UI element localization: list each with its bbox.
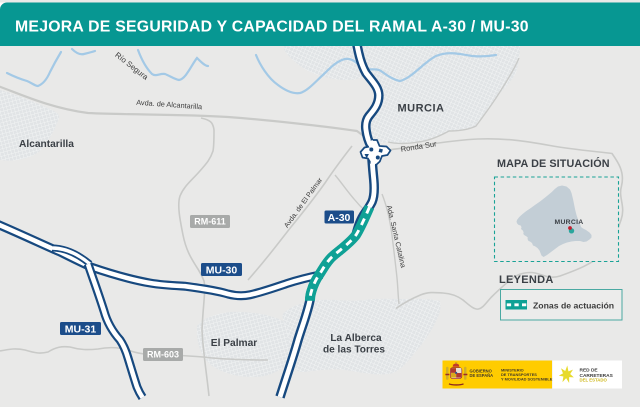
svg-text:DE ESPAÑA: DE ESPAÑA	[470, 373, 494, 378]
svg-text:MURCIA: MURCIA	[398, 103, 445, 115]
svg-text:MURCIA: MURCIA	[555, 219, 584, 226]
svg-text:RM-603: RM-603	[147, 350, 179, 360]
svg-text:MEJORA DE SEGURIDAD Y CAPACIDA: MEJORA DE SEGURIDAD Y CAPACIDAD DEL RAMA…	[15, 19, 529, 36]
svg-text:RED DE: RED DE	[580, 367, 599, 373]
svg-text:RM-611: RM-611	[194, 217, 226, 227]
svg-text:Y MOVILIDAD SOSTENIBLE: Y MOVILIDAD SOSTENIBLE	[501, 377, 553, 382]
svg-text:Alcantarilla: Alcantarilla	[19, 139, 74, 150]
svg-text:MU-31: MU-31	[65, 324, 97, 336]
svg-text:Zonas de actuación: Zonas de actuación	[533, 300, 614, 310]
svg-text:de las Torres: de las Torres	[323, 345, 385, 356]
svg-text:MAPA DE SITUACIÓN: MAPA DE SITUACIÓN	[497, 157, 610, 170]
svg-text:A-30: A-30	[328, 212, 351, 224]
svg-text:LEYENDA: LEYENDA	[499, 274, 554, 286]
svg-text:El Palmar: El Palmar	[211, 338, 257, 349]
svg-text:La Alberca: La Alberca	[330, 333, 382, 344]
svg-text:DEL ESTADO: DEL ESTADO	[580, 378, 608, 383]
svg-text:MU-30: MU-30	[206, 265, 238, 277]
